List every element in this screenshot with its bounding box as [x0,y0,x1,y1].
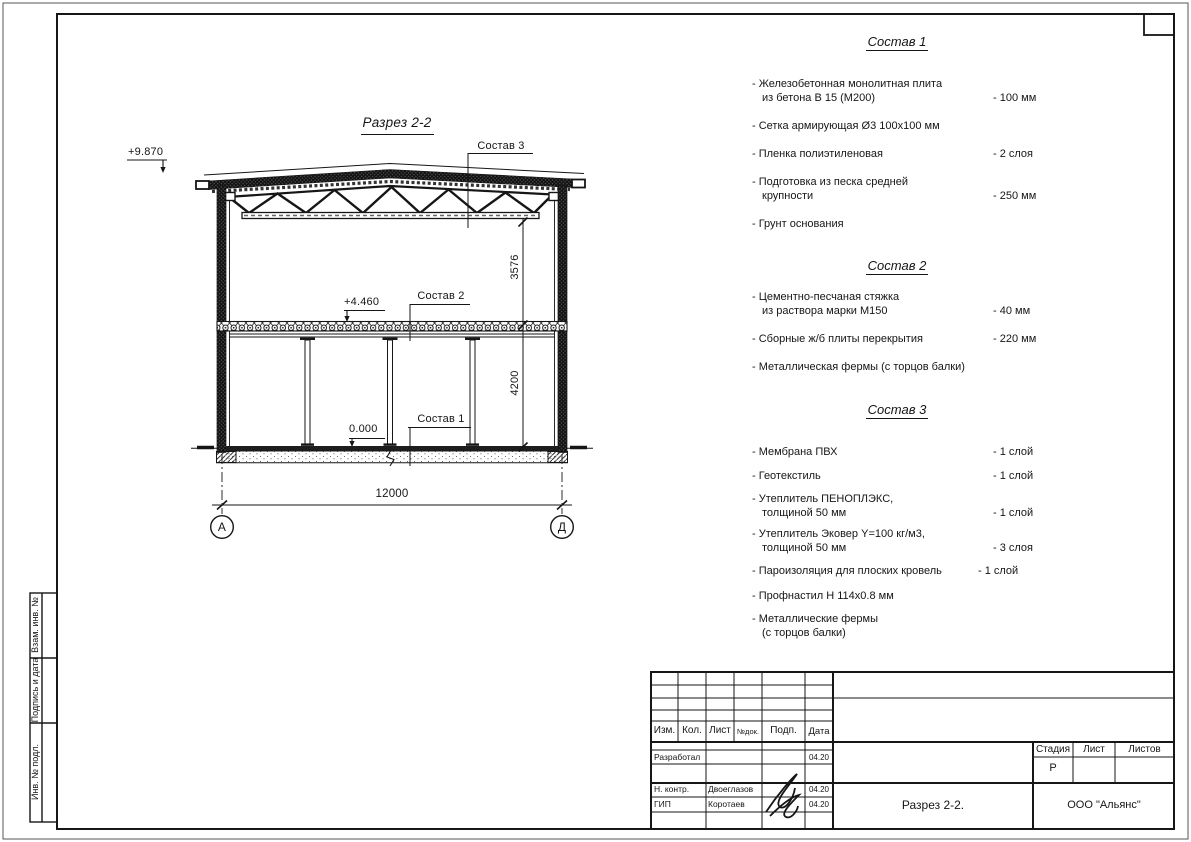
elevation-mid: +4.460 [344,296,379,308]
stamp-doc-title: Разрез 2-2. [833,798,1033,812]
stamp-col-ndok: №док. [734,727,762,736]
elevation-zero: 0.000 [349,423,378,435]
spec-item: - Грунт основания [752,218,1087,232]
stamp-name-gip: Коротаев [708,799,745,809]
spec-item: - Утеплитель ПЕНОПЛЭКС, толщиной 50 мм -… [752,493,1087,520]
stamp-role-developer: Разработал [654,752,700,762]
spec-item: - Подготовка из песка средней крупности … [752,176,1087,203]
spec-item: - Железобетонная монолитная плита из бет… [752,78,1087,105]
spec-item: - Сборные ж/б плиты перекрытия - 220 мм [752,333,1087,347]
elevation-top: +9.870 [128,146,163,158]
stamp-name-ncontr: Двоеглазов [708,784,753,794]
spec-item: - Сетка армирующая Ø3 100х100 мм [752,120,1087,134]
section-drawing [127,135,593,539]
section-title: Разрез 2-2 [352,115,442,130]
stamp-date-ncontr: 04.20 [805,785,833,794]
spec-item: - Пароизоляция для плоских кровель - 1 с… [752,565,1087,579]
stamp-role-ncontr: Н. контр. [654,784,689,794]
sand-layer [226,452,558,463]
truss [224,186,560,219]
stamp-role-gip: ГИП [654,799,671,809]
stamp-col-kol: Кол. [678,725,706,736]
spec-item: - Цементно-песчаная стяжка из раствора м… [752,291,1087,318]
spec-item: - Металлические фермы (с торцов балки) [752,613,1087,640]
side-label-inv-podl: Инв. № подл. [30,727,42,817]
stamp-col-izm: Изм. [651,725,678,736]
spec-item: - Пленка полиэтиленовая - 2 слоя [752,148,1087,162]
axis-letter-left: А [211,520,233,534]
spec2-title: Состав 2 [752,258,1042,273]
stamp-date-gip: 04.20 [805,800,833,809]
wall-left [217,186,226,453]
foundation-right [548,452,568,463]
stamp-sheet-header: Лист [1073,744,1115,755]
floor-slab-0000 [226,446,558,452]
columns [300,339,480,445]
spec3-title: Состав 3 [752,402,1042,417]
leader-label-sostav3: Состав 3 [470,140,532,152]
axis-letter-right: Д [551,520,573,534]
format-corner-box [1144,14,1174,35]
spec-item: - Профнастил Н 114х0.8 мм [752,590,1087,604]
dim-text-3576: 3576 [509,237,521,297]
stamp-sheets-header: Листов [1115,744,1174,755]
ground-floor [191,446,593,466]
drawing-sheet: Разрез 2-2 +9.870 +4.460 0.000 Состав 3 … [0,0,1191,842]
stamp-stage-value: Р [1033,762,1073,774]
foundation-left [217,452,237,463]
stamp-date-developer: 04.20 [805,753,833,762]
signature-scribble [766,774,799,817]
stamp-col-list: Лист [706,725,734,736]
spec-item: - Мембрана ПВХ - 1 слой [752,446,1087,460]
leader-label-sostav1: Состав 1 [412,413,470,425]
spec1-title: Состав 1 [752,34,1042,49]
floor-slab [217,322,567,338]
spec-item: - Металлическая фермы (с торцов балки) [752,361,1087,375]
dim-text-4200: 4200 [509,353,521,413]
spec-item: - Геотекстиль - 1 слой [752,470,1087,484]
stamp-stage-header: Стадия [1033,744,1073,755]
wall-right [558,186,567,453]
roof-edge-plate-right [572,180,585,188]
leader-label-sostav2: Состав 2 [412,290,470,302]
stamp-col-podp: Подп. [762,725,805,736]
stamp-company: ООО "Альянс" [1034,799,1174,811]
spec-item: - Утеплитель Эковер Y=100 кг/м3, толщино… [752,528,1087,555]
side-label-podpis-data: Подпись и дата [30,645,42,735]
dim-text-12000: 12000 [352,488,432,500]
roof-edge-plate-left [196,181,209,189]
stamp-col-data: Дата [805,726,833,737]
